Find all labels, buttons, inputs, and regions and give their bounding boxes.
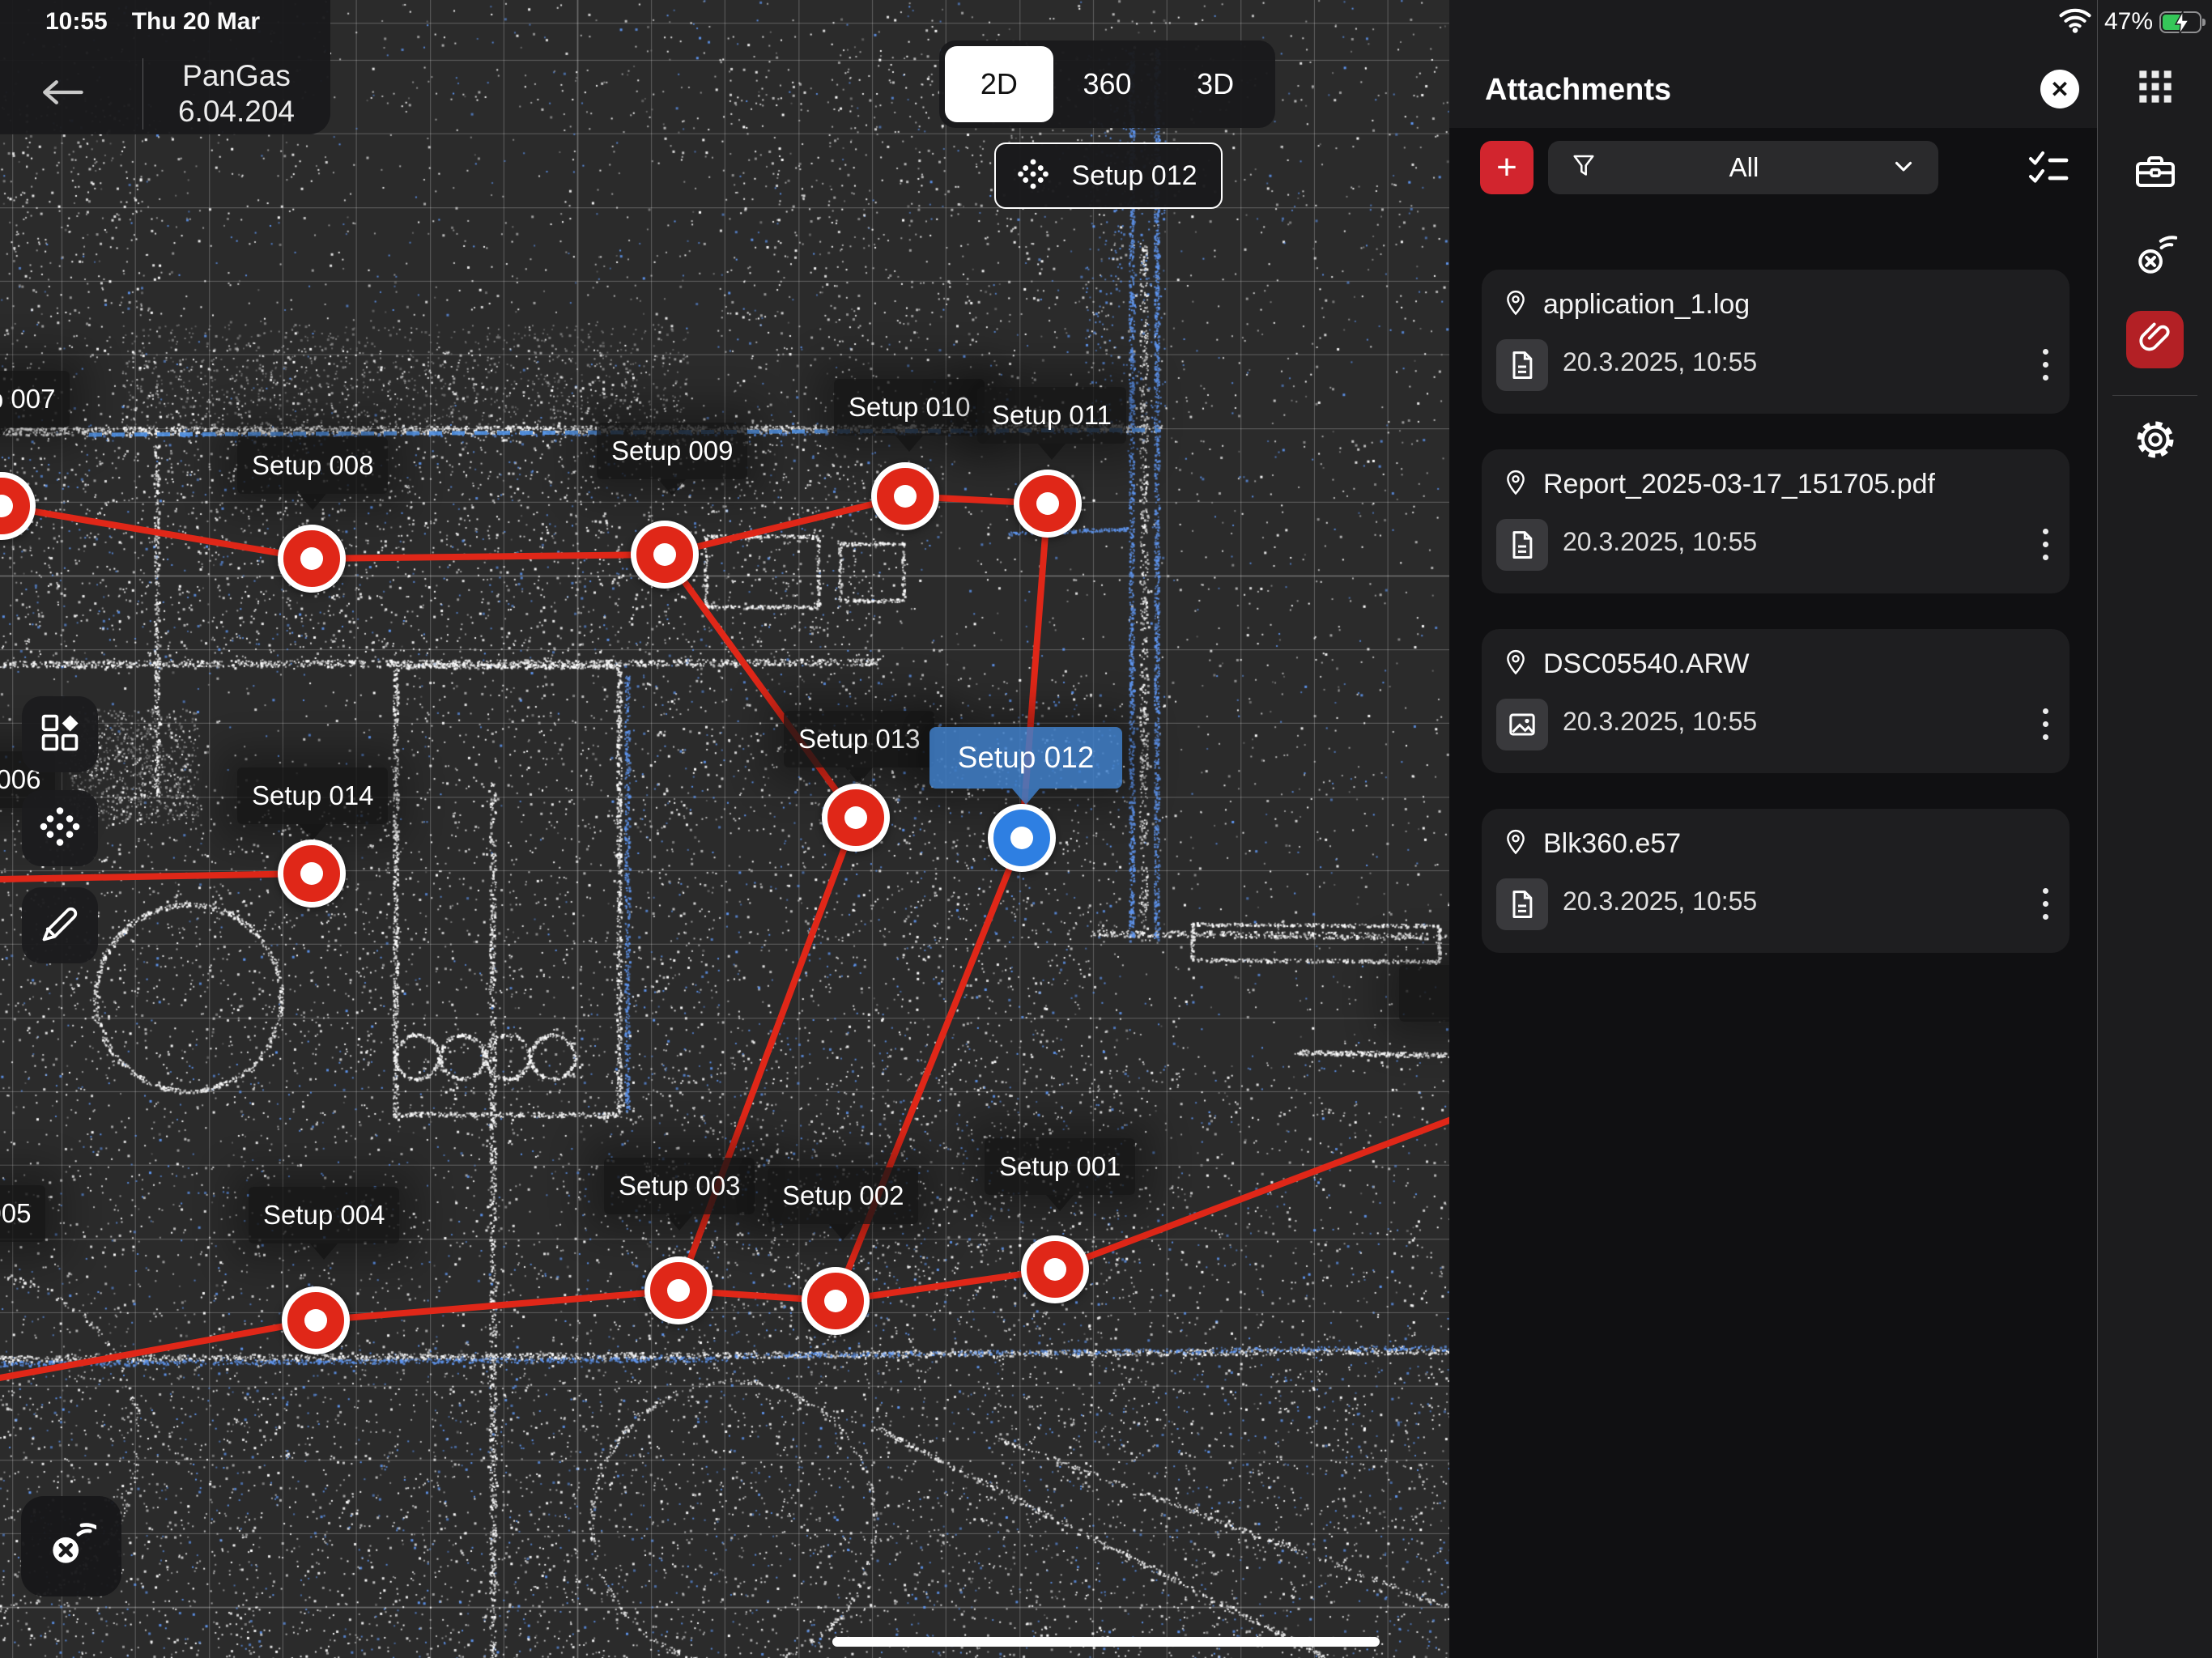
location-pin-icon xyxy=(1502,828,1529,856)
attachments-sidebar-button-active[interactable] xyxy=(2126,311,2184,368)
label-pointer xyxy=(1046,1195,1074,1211)
setup-marker[interactable] xyxy=(822,784,890,852)
multi-select-button[interactable] xyxy=(2026,147,2071,188)
setup-marker[interactable] xyxy=(278,840,346,908)
attachment-date: 20.3.2025, 10:55 xyxy=(1563,886,1757,916)
label-pointer xyxy=(845,767,873,784)
attachment-card[interactable]: application_1.log 20.3.2025, 10:55 xyxy=(1482,270,2069,414)
sidebar-divider xyxy=(2112,395,2197,396)
project-version: 6.04.204 xyxy=(143,94,330,130)
setup-marker-selected[interactable] xyxy=(988,804,1056,872)
home-indicator[interactable] xyxy=(832,1637,1380,1647)
label-pointer xyxy=(299,824,326,840)
setup-label[interactable]: Setup 003 xyxy=(604,1158,755,1214)
attachment-menu-button[interactable] xyxy=(2035,875,2055,932)
tab-360[interactable]: 360 xyxy=(1053,46,1162,122)
label-pointer xyxy=(666,1214,693,1231)
attachment-menu-button[interactable] xyxy=(2035,516,2055,572)
toolbox-icon xyxy=(2133,151,2178,195)
label-pointer xyxy=(1038,444,1066,460)
setup-dots-icon xyxy=(1017,158,1049,194)
chevron-down-icon xyxy=(1890,152,1917,184)
offline-mode-button[interactable] xyxy=(21,1496,121,1596)
date: Thu 20 Mar xyxy=(132,8,260,35)
setup-marker[interactable] xyxy=(1021,1235,1089,1303)
setup-label[interactable]: Setup 011 xyxy=(977,387,1126,444)
toolbox-button[interactable] xyxy=(2098,151,2212,195)
apps-grid-icon xyxy=(2135,66,2176,111)
back-button[interactable] xyxy=(39,74,86,110)
no-connection-button[interactable] xyxy=(2098,235,2212,283)
label-pointer xyxy=(895,436,923,452)
checklist-icon xyxy=(2026,177,2071,191)
battery-status: 47% xyxy=(2104,8,2210,36)
setup-marker[interactable] xyxy=(631,521,699,589)
attachment-type-tile xyxy=(1496,519,1548,571)
file-icon xyxy=(1506,349,1538,381)
attachments-icon xyxy=(2137,319,2174,360)
location-pin-icon xyxy=(1502,289,1529,317)
file-icon xyxy=(1506,888,1538,920)
label-pointer xyxy=(310,1243,338,1260)
close-panel-button[interactable]: ✕ xyxy=(2040,70,2079,108)
setup-marker[interactable] xyxy=(282,1286,350,1354)
attachment-card[interactable]: Report_2025-03-17_151705.pdf 20.3.2025, … xyxy=(1482,449,2069,593)
attachment-type-tile xyxy=(1496,339,1548,391)
project-name: PanGas xyxy=(143,58,330,94)
settings-gear-icon xyxy=(2133,418,2177,466)
setup-label[interactable]: Setup 001 xyxy=(985,1138,1135,1195)
close-icon: ✕ xyxy=(2050,76,2069,103)
setup-label[interactable]: Setup 004 xyxy=(249,1187,399,1243)
location-pin-icon xyxy=(1502,469,1529,496)
map-2d-view[interactable]: Setup 007Setup 008Setup 009Setup 010Setu… xyxy=(0,0,1449,1658)
add-attachment-button[interactable]: + xyxy=(1480,141,1534,194)
attachments-toolbar: + All xyxy=(1449,141,2097,198)
setup-label[interactable]: Setup 010 xyxy=(834,379,985,436)
plus-icon: + xyxy=(1496,150,1517,185)
funnel-icon xyxy=(1569,151,1598,185)
attachment-date: 20.3.2025, 10:55 xyxy=(1563,707,1757,737)
setup-label[interactable]: Setup 009 xyxy=(597,423,747,479)
tab-3d[interactable]: 3D xyxy=(1161,46,1270,122)
label-pointer xyxy=(299,494,326,510)
attachment-name: DSC05540.ARW xyxy=(1543,648,1750,680)
battery-percent: 47% xyxy=(2104,8,2153,36)
attachment-card[interactable]: DSC05540.ARW 20.3.2025, 10:55 xyxy=(1482,629,2069,773)
setup-label[interactable]: Setup 002 xyxy=(768,1167,918,1224)
attachment-type-tile xyxy=(1496,878,1548,930)
attachment-name: Report_2025-03-17_151705.pdf xyxy=(1543,469,1935,500)
attachment-type-tile xyxy=(1496,699,1548,750)
settings-button[interactable] xyxy=(2098,418,2212,466)
active-setup-pill[interactable]: Setup 012 xyxy=(994,142,1223,209)
setup-marker[interactable] xyxy=(871,462,939,530)
filter-selected-value: All xyxy=(1598,152,1890,183)
apps-grid-button[interactable] xyxy=(2098,66,2212,111)
clock: 10:55 xyxy=(45,8,108,35)
file-icon xyxy=(1506,529,1538,561)
wifi-icon xyxy=(2058,6,2092,34)
attachment-name: Blk360.e57 xyxy=(1543,828,1681,860)
layers-tool-button[interactable] xyxy=(22,696,98,772)
setup-label[interactable]: Setup 008 xyxy=(237,437,388,494)
filter-dropdown[interactable]: All xyxy=(1548,141,1938,194)
setup-label[interactable]: Setup 005 xyxy=(0,1185,45,1242)
no-connection-icon xyxy=(2133,235,2177,283)
layers-squares-icon xyxy=(39,712,81,758)
setup-label[interactable]: Setup 013 xyxy=(784,711,934,767)
setup-label[interactable]: Setup 007 xyxy=(0,371,70,427)
image-icon xyxy=(1506,708,1538,741)
active-setup-label: Setup 012 xyxy=(1069,160,1200,192)
project-info: PanGas 6.04.204 xyxy=(143,58,330,130)
attachment-menu-button[interactable] xyxy=(2035,336,2055,393)
setup-label[interactable]: Setup 014 xyxy=(237,767,388,824)
setup-marker[interactable] xyxy=(802,1267,870,1335)
setup-connection-lines xyxy=(0,0,1449,1658)
view-mode-switcher: 2D 360 3D xyxy=(939,40,1275,128)
scalpel-icon xyxy=(39,903,81,949)
app-sidebar: 47% xyxy=(2098,0,2212,1658)
label-pointer xyxy=(0,427,8,444)
arrow-left-icon xyxy=(39,100,86,113)
setup-dots-icon xyxy=(39,806,81,852)
no-connection-icon xyxy=(46,1520,96,1574)
attachment-name: application_1.log xyxy=(1543,289,1750,321)
setup-marker[interactable] xyxy=(1014,470,1082,538)
setup-marker[interactable] xyxy=(644,1256,713,1324)
location-pin-icon xyxy=(1502,648,1529,676)
attachment-card[interactable]: Blk360.e57 20.3.2025, 10:55 xyxy=(1482,809,2069,953)
attachments-panel: Attachments ✕ + All xyxy=(1449,0,2098,1658)
panel-title: Attachments xyxy=(1485,73,1671,108)
project-header: 10:55Thu 20 Mar PanGas 6.04.204 xyxy=(0,0,330,134)
attachment-date: 20.3.2025, 10:55 xyxy=(1563,347,1757,377)
setup-marker[interactable] xyxy=(278,525,346,593)
attachment-date: 20.3.2025, 10:55 xyxy=(1563,527,1757,557)
status-bar-left: 10:55Thu 20 Mar xyxy=(45,8,260,36)
battery-icon xyxy=(2159,11,2201,33)
label-pointer xyxy=(1012,789,1040,805)
setup-label[interactable]: S xyxy=(1399,965,1449,1022)
tab-2d[interactable]: 2D xyxy=(945,46,1053,122)
label-pointer xyxy=(658,479,686,495)
attachments-list: application_1.log 20.3.2025, 10:55 Repor… xyxy=(1482,270,2069,988)
setup-label-selected[interactable]: Setup 012 xyxy=(929,727,1122,789)
setups-tool-button[interactable] xyxy=(22,790,98,866)
label-pointer xyxy=(829,1224,857,1240)
attachments-panel-header xyxy=(1449,0,2097,128)
attachment-menu-button[interactable] xyxy=(2035,695,2055,752)
annotate-tool-button[interactable] xyxy=(22,887,98,963)
